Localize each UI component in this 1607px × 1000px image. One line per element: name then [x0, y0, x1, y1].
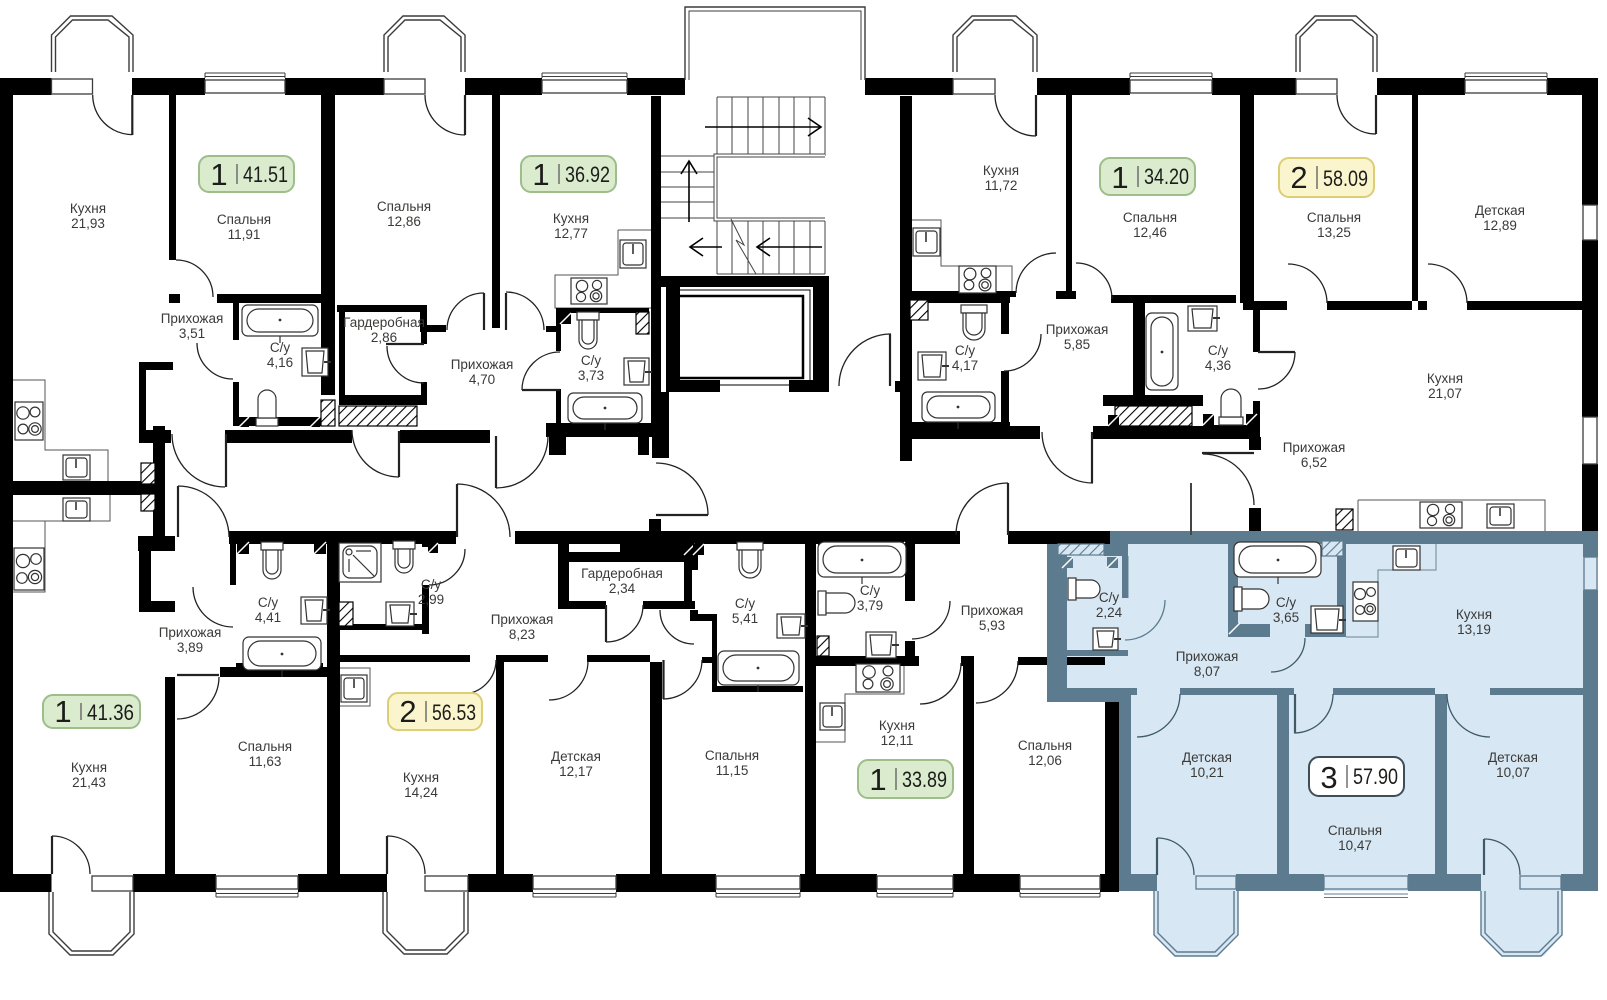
svg-text:1: 1: [532, 157, 549, 192]
svg-text:Спальня: Спальня: [1018, 738, 1072, 753]
svg-text:С/у: С/у: [1099, 590, 1120, 605]
svg-text:36.92: 36.92: [565, 162, 610, 187]
svg-text:Гардеробная: Гардеробная: [343, 315, 425, 330]
svg-text:1: 1: [869, 762, 886, 797]
svg-text:58.09: 58.09: [1323, 166, 1368, 191]
svg-text:2,99: 2,99: [418, 592, 444, 607]
svg-text:Детская: Детская: [1182, 750, 1232, 765]
svg-text:Спальня: Спальня: [1123, 210, 1177, 225]
svg-text:Прихожая: Прихожая: [1176, 649, 1239, 664]
svg-text:10,47: 10,47: [1338, 838, 1372, 853]
svg-text:14,24: 14,24: [404, 785, 438, 800]
svg-text:1: 1: [210, 157, 227, 192]
svg-text:34.20: 34.20: [1144, 164, 1189, 189]
svg-text:21,93: 21,93: [71, 216, 105, 231]
svg-text:11,72: 11,72: [985, 178, 1018, 193]
svg-text:3: 3: [1320, 760, 1337, 795]
svg-text:Кухня: Кухня: [879, 718, 915, 733]
svg-text:56.53: 56.53: [432, 700, 476, 725]
svg-text:Детская: Детская: [551, 749, 601, 764]
svg-text:С/у: С/у: [421, 577, 442, 592]
svg-text:Прихожая: Прихожая: [1283, 440, 1346, 455]
svg-text:12,46: 12,46: [1133, 225, 1167, 240]
svg-text:Гардеробная: Гардеробная: [581, 566, 663, 581]
svg-text:1: 1: [1111, 160, 1128, 195]
svg-text:Прихожая: Прихожая: [1046, 322, 1109, 337]
svg-text:12,77: 12,77: [554, 226, 588, 241]
svg-text:3,73: 3,73: [578, 368, 604, 383]
svg-text:4,17: 4,17: [952, 358, 978, 373]
svg-text:Прихожая: Прихожая: [491, 612, 554, 627]
svg-text:Кухня: Кухня: [70, 201, 106, 216]
svg-text:3,65: 3,65: [1273, 610, 1299, 625]
svg-text:3,89: 3,89: [177, 640, 203, 655]
svg-text:4,36: 4,36: [1205, 358, 1231, 373]
svg-text:Спальня: Спальня: [1328, 823, 1382, 838]
svg-text:12,86: 12,86: [387, 214, 421, 229]
svg-text:11,91: 11,91: [228, 227, 261, 242]
svg-text:Детская: Детская: [1488, 750, 1538, 765]
svg-text:12,89: 12,89: [1483, 218, 1517, 233]
svg-text:2,86: 2,86: [371, 330, 397, 345]
svg-text:13,25: 13,25: [1317, 225, 1351, 240]
svg-text:8,07: 8,07: [1194, 664, 1220, 679]
svg-text:5,41: 5,41: [732, 611, 758, 626]
svg-text:2,34: 2,34: [609, 581, 636, 596]
svg-text:С/у: С/у: [581, 353, 602, 368]
svg-text:11,63: 11,63: [249, 754, 282, 769]
svg-text:2: 2: [399, 694, 416, 729]
svg-text:Спальня: Спальня: [238, 739, 292, 754]
svg-text:12,17: 12,17: [559, 764, 593, 779]
svg-text:С/у: С/у: [860, 583, 881, 598]
svg-text:6,52: 6,52: [1301, 455, 1327, 470]
svg-text:5,85: 5,85: [1064, 337, 1090, 352]
svg-text:Кухня: Кухня: [71, 760, 107, 775]
svg-text:13,19: 13,19: [1457, 622, 1491, 637]
svg-text:21,07: 21,07: [1428, 386, 1462, 401]
svg-text:С/у: С/у: [270, 340, 291, 355]
svg-text:4,41: 4,41: [255, 610, 281, 625]
svg-text:С/у: С/у: [735, 596, 756, 611]
svg-text:С/у: С/у: [1208, 343, 1229, 358]
svg-text:Кухня: Кухня: [403, 770, 439, 785]
svg-text:Кухня: Кухня: [1456, 607, 1492, 622]
svg-text:8,23: 8,23: [509, 627, 535, 642]
svg-text:Прихожая: Прихожая: [961, 603, 1024, 618]
svg-text:12,06: 12,06: [1028, 753, 1062, 768]
svg-text:3,51: 3,51: [179, 326, 205, 341]
svg-text:2: 2: [1290, 160, 1307, 195]
svg-text:Кухня: Кухня: [553, 211, 589, 226]
svg-text:Прихожая: Прихожая: [451, 357, 514, 372]
svg-text:С/у: С/у: [955, 343, 976, 358]
svg-text:Спальня: Спальня: [705, 748, 759, 763]
svg-text:41.51: 41.51: [243, 162, 288, 187]
svg-text:3,79: 3,79: [857, 598, 883, 613]
svg-text:11,15: 11,15: [716, 763, 749, 778]
svg-text:Прихожая: Прихожая: [161, 311, 224, 326]
svg-text:4,16: 4,16: [267, 355, 293, 370]
svg-text:Детская: Детская: [1475, 203, 1525, 218]
svg-text:Кухня: Кухня: [1427, 371, 1463, 386]
svg-text:4,70: 4,70: [469, 372, 495, 387]
svg-text:С/у: С/у: [1276, 595, 1297, 610]
svg-text:12,11: 12,11: [881, 733, 914, 748]
svg-text:Спальня: Спальня: [217, 212, 271, 227]
svg-text:Кухня: Кухня: [983, 163, 1019, 178]
svg-text:41.36: 41.36: [87, 700, 134, 725]
svg-text:33.89: 33.89: [902, 767, 947, 792]
svg-text:57.90: 57.90: [1353, 764, 1398, 789]
svg-text:10,07: 10,07: [1496, 765, 1530, 780]
svg-text:21,43: 21,43: [72, 775, 106, 790]
svg-text:1: 1: [54, 694, 71, 729]
svg-text:Спальня: Спальня: [377, 199, 431, 214]
svg-text:10,21: 10,21: [1190, 765, 1224, 780]
svg-text:5,93: 5,93: [979, 618, 1005, 633]
svg-text:Прихожая: Прихожая: [159, 625, 222, 640]
svg-text:Спальня: Спальня: [1307, 210, 1361, 225]
svg-text:С/у: С/у: [258, 595, 279, 610]
svg-text:2,24: 2,24: [1096, 605, 1123, 620]
